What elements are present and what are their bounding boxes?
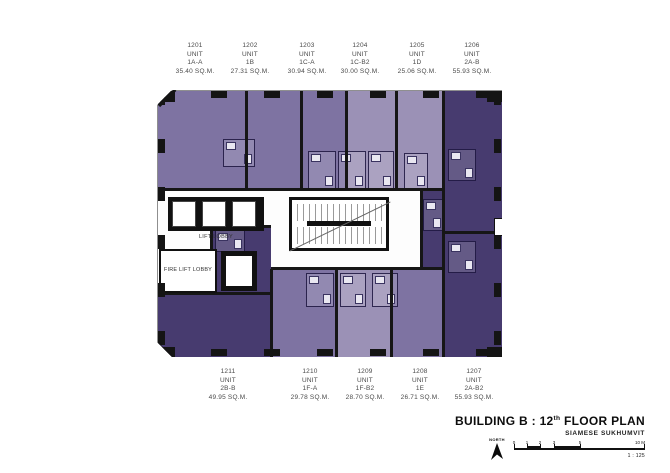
unit-label-1211: 1211 UNIT 2B-B 49.95 SQ.M.	[196, 368, 260, 402]
wall	[270, 269, 273, 358]
fire-lift-lobby: FIRE LIFT LOBBY	[159, 249, 217, 293]
bathroom-detail	[448, 241, 476, 273]
unit-type: 2A-B	[440, 59, 504, 68]
unit-word: UNIT	[328, 51, 392, 60]
fire-lift-shaft	[221, 251, 257, 291]
unit-word: UNIT	[442, 377, 506, 386]
perimeter-wall-left	[158, 91, 165, 358]
bathroom-detail	[340, 273, 366, 307]
corner-pier	[487, 91, 503, 102]
ac-ledge-notch	[494, 218, 503, 236]
scale-segment	[554, 446, 580, 450]
scale-tick	[580, 444, 581, 450]
perimeter-wall-top	[158, 91, 503, 98]
scale-bar: 0 1 2 3 5 10 M 1 : 125	[514, 440, 645, 462]
fire-lift-car	[226, 256, 252, 286]
scale-segment	[527, 446, 540, 450]
corner-pier	[487, 347, 503, 358]
wall	[420, 189, 423, 269]
scale-tick	[540, 444, 541, 450]
scale-tick	[527, 444, 528, 450]
scale-tick	[644, 444, 645, 450]
north-arrow: NORTH	[486, 437, 508, 467]
unit-number: 1206	[440, 42, 504, 51]
unit-number: 1207	[442, 368, 506, 377]
wall	[442, 91, 445, 358]
wall	[271, 267, 444, 270]
bathroom-detail	[404, 153, 428, 189]
lift-car	[232, 201, 256, 227]
project-name: SIAMESE SUKHUMVIT	[565, 430, 645, 437]
bathroom-detail	[448, 149, 476, 181]
unit-type: 1B	[218, 59, 282, 68]
title-prefix: BUILDING B : 12	[455, 414, 554, 428]
unit-word: UNIT	[218, 51, 282, 60]
lift-car	[202, 201, 226, 227]
unit-label-1204: 1204 UNIT 1C-B2 30.00 SQ.M.	[328, 42, 392, 76]
scale-ratio: 1 : 125	[628, 453, 645, 459]
corner-pier	[158, 91, 175, 102]
unit-number: 1211	[196, 368, 260, 377]
bathroom-detail	[423, 199, 444, 231]
fire-lift-lobby-label: FIRE LIFT LOBBY	[161, 267, 215, 274]
unit-label-1207: 1207 UNIT 2A-B2 55.93 SQ.M.	[442, 368, 506, 402]
title-suffix: FLOOR PLAN	[560, 414, 645, 428]
bathroom-detail	[223, 139, 255, 167]
unit-area: 30.00 SQ.M.	[328, 68, 392, 77]
unit-area: 49.95 SQ.M.	[196, 394, 260, 403]
scale-tick	[514, 444, 515, 450]
wall	[395, 91, 398, 189]
stair-flight	[297, 204, 383, 221]
wall	[390, 269, 393, 358]
bathroom-detail	[372, 273, 398, 307]
unit-number: 1204	[328, 42, 392, 51]
scale-tick	[554, 444, 555, 450]
corner-pier	[158, 347, 175, 358]
unit-label-1202: 1202 UNIT 1B 27.31 SQ.M.	[218, 42, 282, 76]
page-title: BUILDING B : 12th FLOOR PLAN	[455, 414, 645, 428]
wall	[345, 91, 348, 189]
unit-1208-region	[391, 269, 444, 358]
bathroom-detail	[306, 273, 334, 307]
unit-number: 1202	[218, 42, 282, 51]
wall	[335, 269, 338, 358]
floor-plan-page: LIFT LOBBY FIRE LIFT LOBBY 1201 UNIT 1A-…	[0, 0, 670, 473]
unit-word: UNIT	[196, 377, 260, 386]
wall	[300, 91, 303, 189]
unit-area: 27.31 SQ.M.	[218, 68, 282, 77]
bathroom-detail	[338, 151, 366, 189]
unit-label-1206: 1206 UNIT 2A-B 55.93 SQ.M.	[440, 42, 504, 76]
unit-type: 1C-B2	[328, 59, 392, 68]
perimeter-wall-bottom	[158, 349, 503, 356]
north-arrow-icon	[487, 442, 507, 462]
lift-shafts	[168, 197, 264, 231]
wall	[245, 91, 248, 189]
unit-type: 2B-B	[196, 385, 260, 394]
bathroom-detail	[308, 151, 336, 189]
bathroom-detail	[368, 151, 394, 189]
unit-type: 2A-B2	[442, 385, 506, 394]
unit-area: 55.93 SQ.M.	[440, 68, 504, 77]
unit-word: UNIT	[440, 51, 504, 60]
staircase	[289, 197, 389, 251]
lift-lobby-label: LIFT LOBBY	[166, 234, 266, 240]
floor-plan-drawing: LIFT LOBBY FIRE LIFT LOBBY	[157, 90, 502, 357]
lift-car	[172, 201, 196, 227]
unit-area: 55.93 SQ.M.	[442, 394, 506, 403]
